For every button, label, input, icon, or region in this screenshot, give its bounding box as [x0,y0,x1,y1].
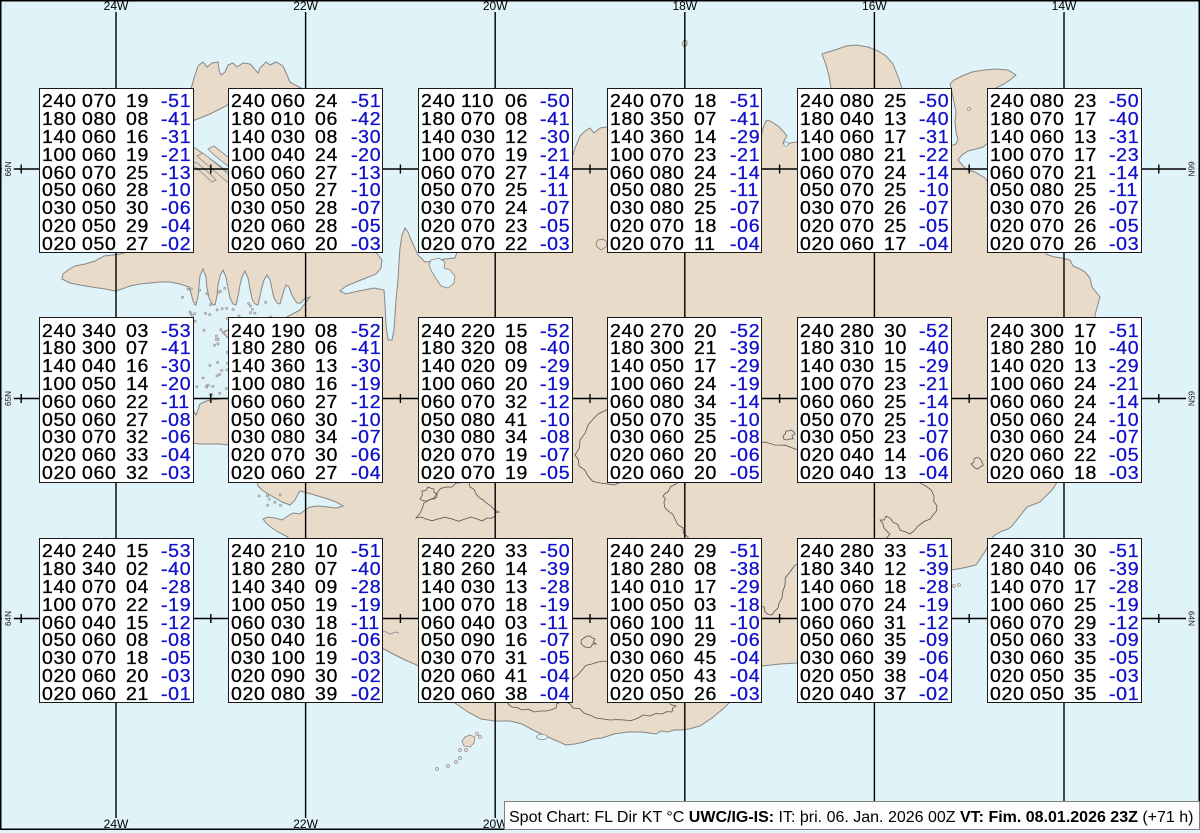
svg-text:65N: 65N [4,391,13,406]
svg-text:24W: 24W [104,0,129,13]
svg-text:14W: 14W [1052,0,1077,13]
svg-text:16W: 16W [862,0,887,13]
svg-text:64N: 64N [4,611,13,626]
svg-text:66N: 66N [4,161,13,176]
svg-text:20W: 20W [483,0,508,13]
svg-text:65N: 65N [1187,391,1196,406]
svg-text:66N: 66N [1187,161,1196,176]
svg-text:22W: 22W [293,0,318,13]
svg-text:22W: 22W [293,817,318,830]
svg-text:18W: 18W [672,0,697,13]
svg-text:24W: 24W [104,817,129,830]
svg-text:64N: 64N [1187,611,1196,626]
